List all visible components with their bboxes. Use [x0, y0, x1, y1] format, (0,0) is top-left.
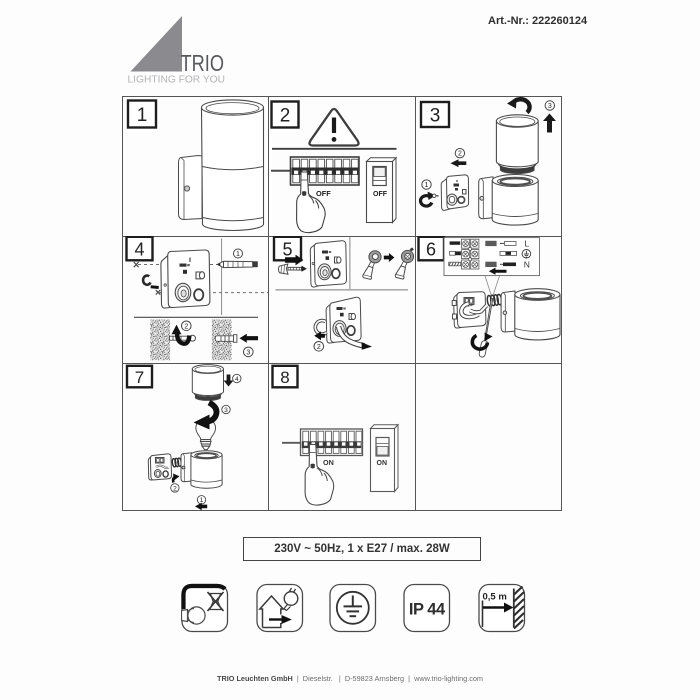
- svg-text:1: 1: [425, 182, 429, 189]
- svg-text:3: 3: [548, 103, 552, 110]
- svg-text:8: 8: [280, 368, 289, 387]
- svg-text:4: 4: [134, 240, 144, 260]
- svg-text:N: N: [524, 259, 530, 269]
- svg-text:7: 7: [135, 368, 144, 387]
- svg-text:2: 2: [280, 106, 291, 127]
- svg-text:4: 4: [235, 376, 239, 383]
- svg-text:5: 5: [282, 240, 292, 260]
- svg-text:OFF: OFF: [316, 189, 331, 198]
- svg-text:0,5 m: 0,5 m: [482, 592, 506, 603]
- svg-text:2: 2: [184, 323, 188, 330]
- svg-text:1: 1: [236, 251, 240, 258]
- svg-text:ON: ON: [323, 458, 334, 467]
- svg-text:OFF: OFF: [373, 191, 388, 198]
- svg-text:6: 6: [426, 240, 436, 260]
- svg-text:3: 3: [430, 106, 441, 127]
- svg-text:LIGHTING FOR YOU: LIGHTING FOR YOU: [128, 75, 226, 86]
- svg-text:3: 3: [224, 407, 228, 414]
- svg-text:ON: ON: [377, 460, 388, 467]
- svg-text:3: 3: [246, 349, 250, 356]
- svg-text:1: 1: [137, 105, 148, 126]
- svg-text:2: 2: [458, 151, 462, 158]
- svg-text:L: L: [525, 239, 530, 249]
- svg-text:2: 2: [173, 485, 177, 492]
- svg-text:TRIO: TRIO: [181, 50, 225, 76]
- svg-text:IP 44: IP 44: [409, 601, 446, 619]
- svg-text:2: 2: [317, 344, 321, 351]
